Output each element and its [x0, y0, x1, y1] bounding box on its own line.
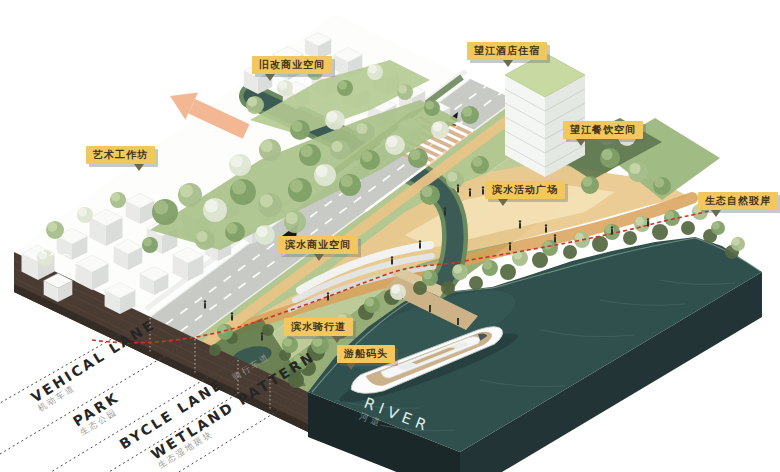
hotel-building: [505, 53, 585, 177]
callout-cycling-path: 滨水骑行道: [284, 318, 353, 336]
callout-activity-plaza: 滨水活动广场: [485, 181, 565, 199]
callout-dining-space: 望江餐饮空间: [563, 121, 643, 139]
callout-hotel-stay: 望江酒店住宿: [467, 42, 547, 60]
callout-boat-dock: 游船码头: [337, 345, 395, 363]
callout-art-workshop: 艺术工作坊: [86, 146, 155, 164]
callout-old-renovation-commercial: 旧改商业空间: [252, 56, 332, 74]
callout-waterfront-commercial: 滨水商业空间: [278, 236, 358, 254]
waterfront-masterplan-diagram: 旧改商业空间 望江酒店住宿 望江餐饮空间 艺术工作坊 滨水活动广场 生态自然驳岸…: [0, 0, 780, 472]
callout-natural-revetment: 生态自然驳岸: [698, 192, 778, 210]
